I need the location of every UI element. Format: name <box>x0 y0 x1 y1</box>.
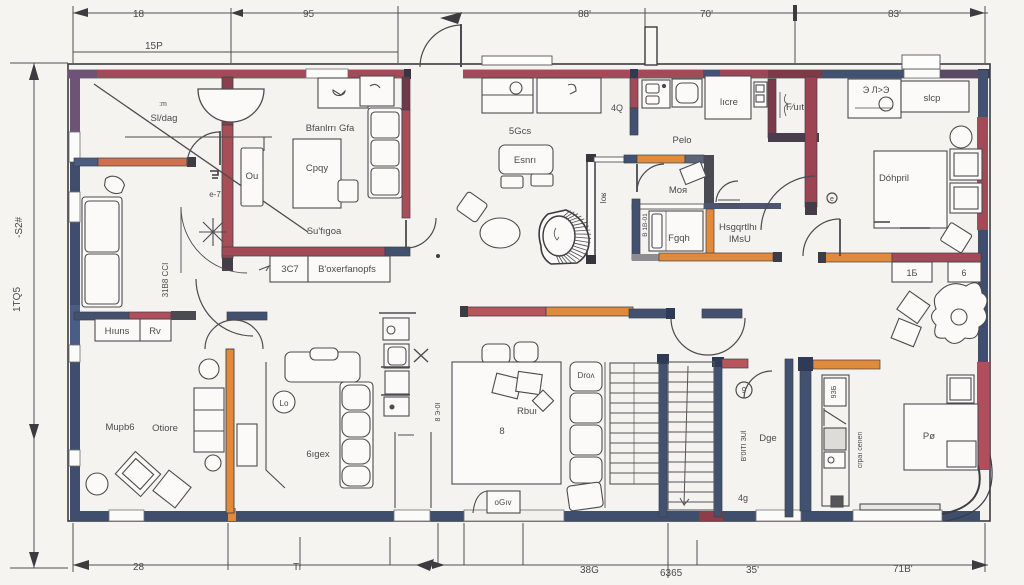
svg-text:6: 6 <box>961 268 966 278</box>
svg-text:F⁄uıt: F⁄uıt <box>786 102 804 113</box>
svg-text:18: 18 <box>133 9 145 20</box>
svg-text:6365: 6365 <box>660 568 683 579</box>
svg-text:Rbuı: Rbuı <box>517 406 537 417</box>
svg-text:Cpqy: Cpqy <box>306 163 328 174</box>
svg-text:-S2#: -S2# <box>14 216 25 238</box>
svg-text:31B8 CCI: 31B8 CCI <box>161 263 170 298</box>
svg-text:28: 28 <box>133 562 145 573</box>
svg-text:B'0ITI ЗUl: B'0ITI ЗUl <box>741 430 748 461</box>
svg-text:B'oxerfanopfs: B'oxerfanopfs <box>318 264 376 275</box>
svg-text:70': 70' <box>700 9 713 20</box>
svg-text:Otiore: Otiore <box>152 423 178 434</box>
svg-text::m: :m <box>159 101 167 108</box>
svg-text:Lo: Lo <box>280 399 289 408</box>
svg-text:35': 35' <box>746 565 759 576</box>
svg-text:8: 8 <box>499 426 504 437</box>
svg-text:lıcre: lıcre <box>720 97 738 108</box>
svg-text:Pelo: Pelo <box>672 135 691 146</box>
svg-text:71B': 71B' <box>893 564 913 575</box>
svg-text:1TQ5: 1TQ5 <box>12 287 23 312</box>
svg-text:oGıv: oGıv <box>495 498 512 507</box>
svg-text:83': 83' <box>888 9 901 20</box>
svg-text:e: e <box>830 196 834 203</box>
svg-text:Э Л>Э: Э Л>Э <box>863 85 890 95</box>
svg-text:9ЗБ: 9ЗБ <box>831 385 838 398</box>
svg-text:Esnrı: Esnrı <box>514 155 536 166</box>
svg-text:Rv: Rv <box>149 326 161 337</box>
svg-text:8 Э-0I: 8 Э-0I <box>435 402 442 421</box>
svg-text:88': 88' <box>578 9 591 20</box>
svg-text:Ou: Ou <box>246 171 259 182</box>
svg-text:3C7: 3C7 <box>281 264 298 275</box>
svg-text:e-7: e-7 <box>209 190 221 199</box>
svg-text:Fgqh: Fgqh <box>668 233 690 244</box>
svg-text:Hıuns: Hıuns <box>105 326 130 337</box>
svg-text:Hsgqrtlhı: Hsgqrtlhı <box>719 222 757 233</box>
svg-text:Рø: Рø <box>923 431 935 442</box>
svg-text:lMsU: lMsU <box>729 234 751 245</box>
svg-text:B 1B-01: B 1B-01 <box>642 213 649 237</box>
svg-text:Ioʁ: Ioʁ <box>599 192 608 204</box>
svg-text:Su'fıgoa: Su'fıgoa <box>307 226 342 237</box>
svg-text:Dge: Dge <box>759 433 776 444</box>
svg-text:Mupb6: Mupb6 <box>105 422 134 433</box>
svg-text:6ıgex: 6ıgex <box>306 449 329 460</box>
svg-text:95: 95 <box>303 9 315 20</box>
svg-text:9: 9 <box>742 386 747 395</box>
svg-text:Droʌ: Droʌ <box>578 371 595 380</box>
svg-text:crpaı cenen: crpaı cenen <box>857 432 864 469</box>
svg-text:1Б: 1Б <box>907 268 918 278</box>
svg-text:slcp: slcp <box>924 93 941 104</box>
svg-text:Sl/dag: Sl/dag <box>151 113 178 124</box>
svg-text:Dóhpril: Dóhpril <box>879 173 909 184</box>
svg-text:4g: 4g <box>738 493 748 503</box>
svg-text:Tr: Tr <box>293 562 303 573</box>
svg-text:38G: 38G <box>580 565 599 576</box>
svg-text:Moя: Moя <box>669 185 687 196</box>
svg-text:15P: 15P <box>145 41 163 52</box>
svg-text:4Q: 4Q <box>611 103 623 113</box>
svg-text:5Gcs: 5Gcs <box>509 126 531 137</box>
svg-text:Bfanlrrı Gfa: Bfanlrrı Gfa <box>306 123 355 134</box>
